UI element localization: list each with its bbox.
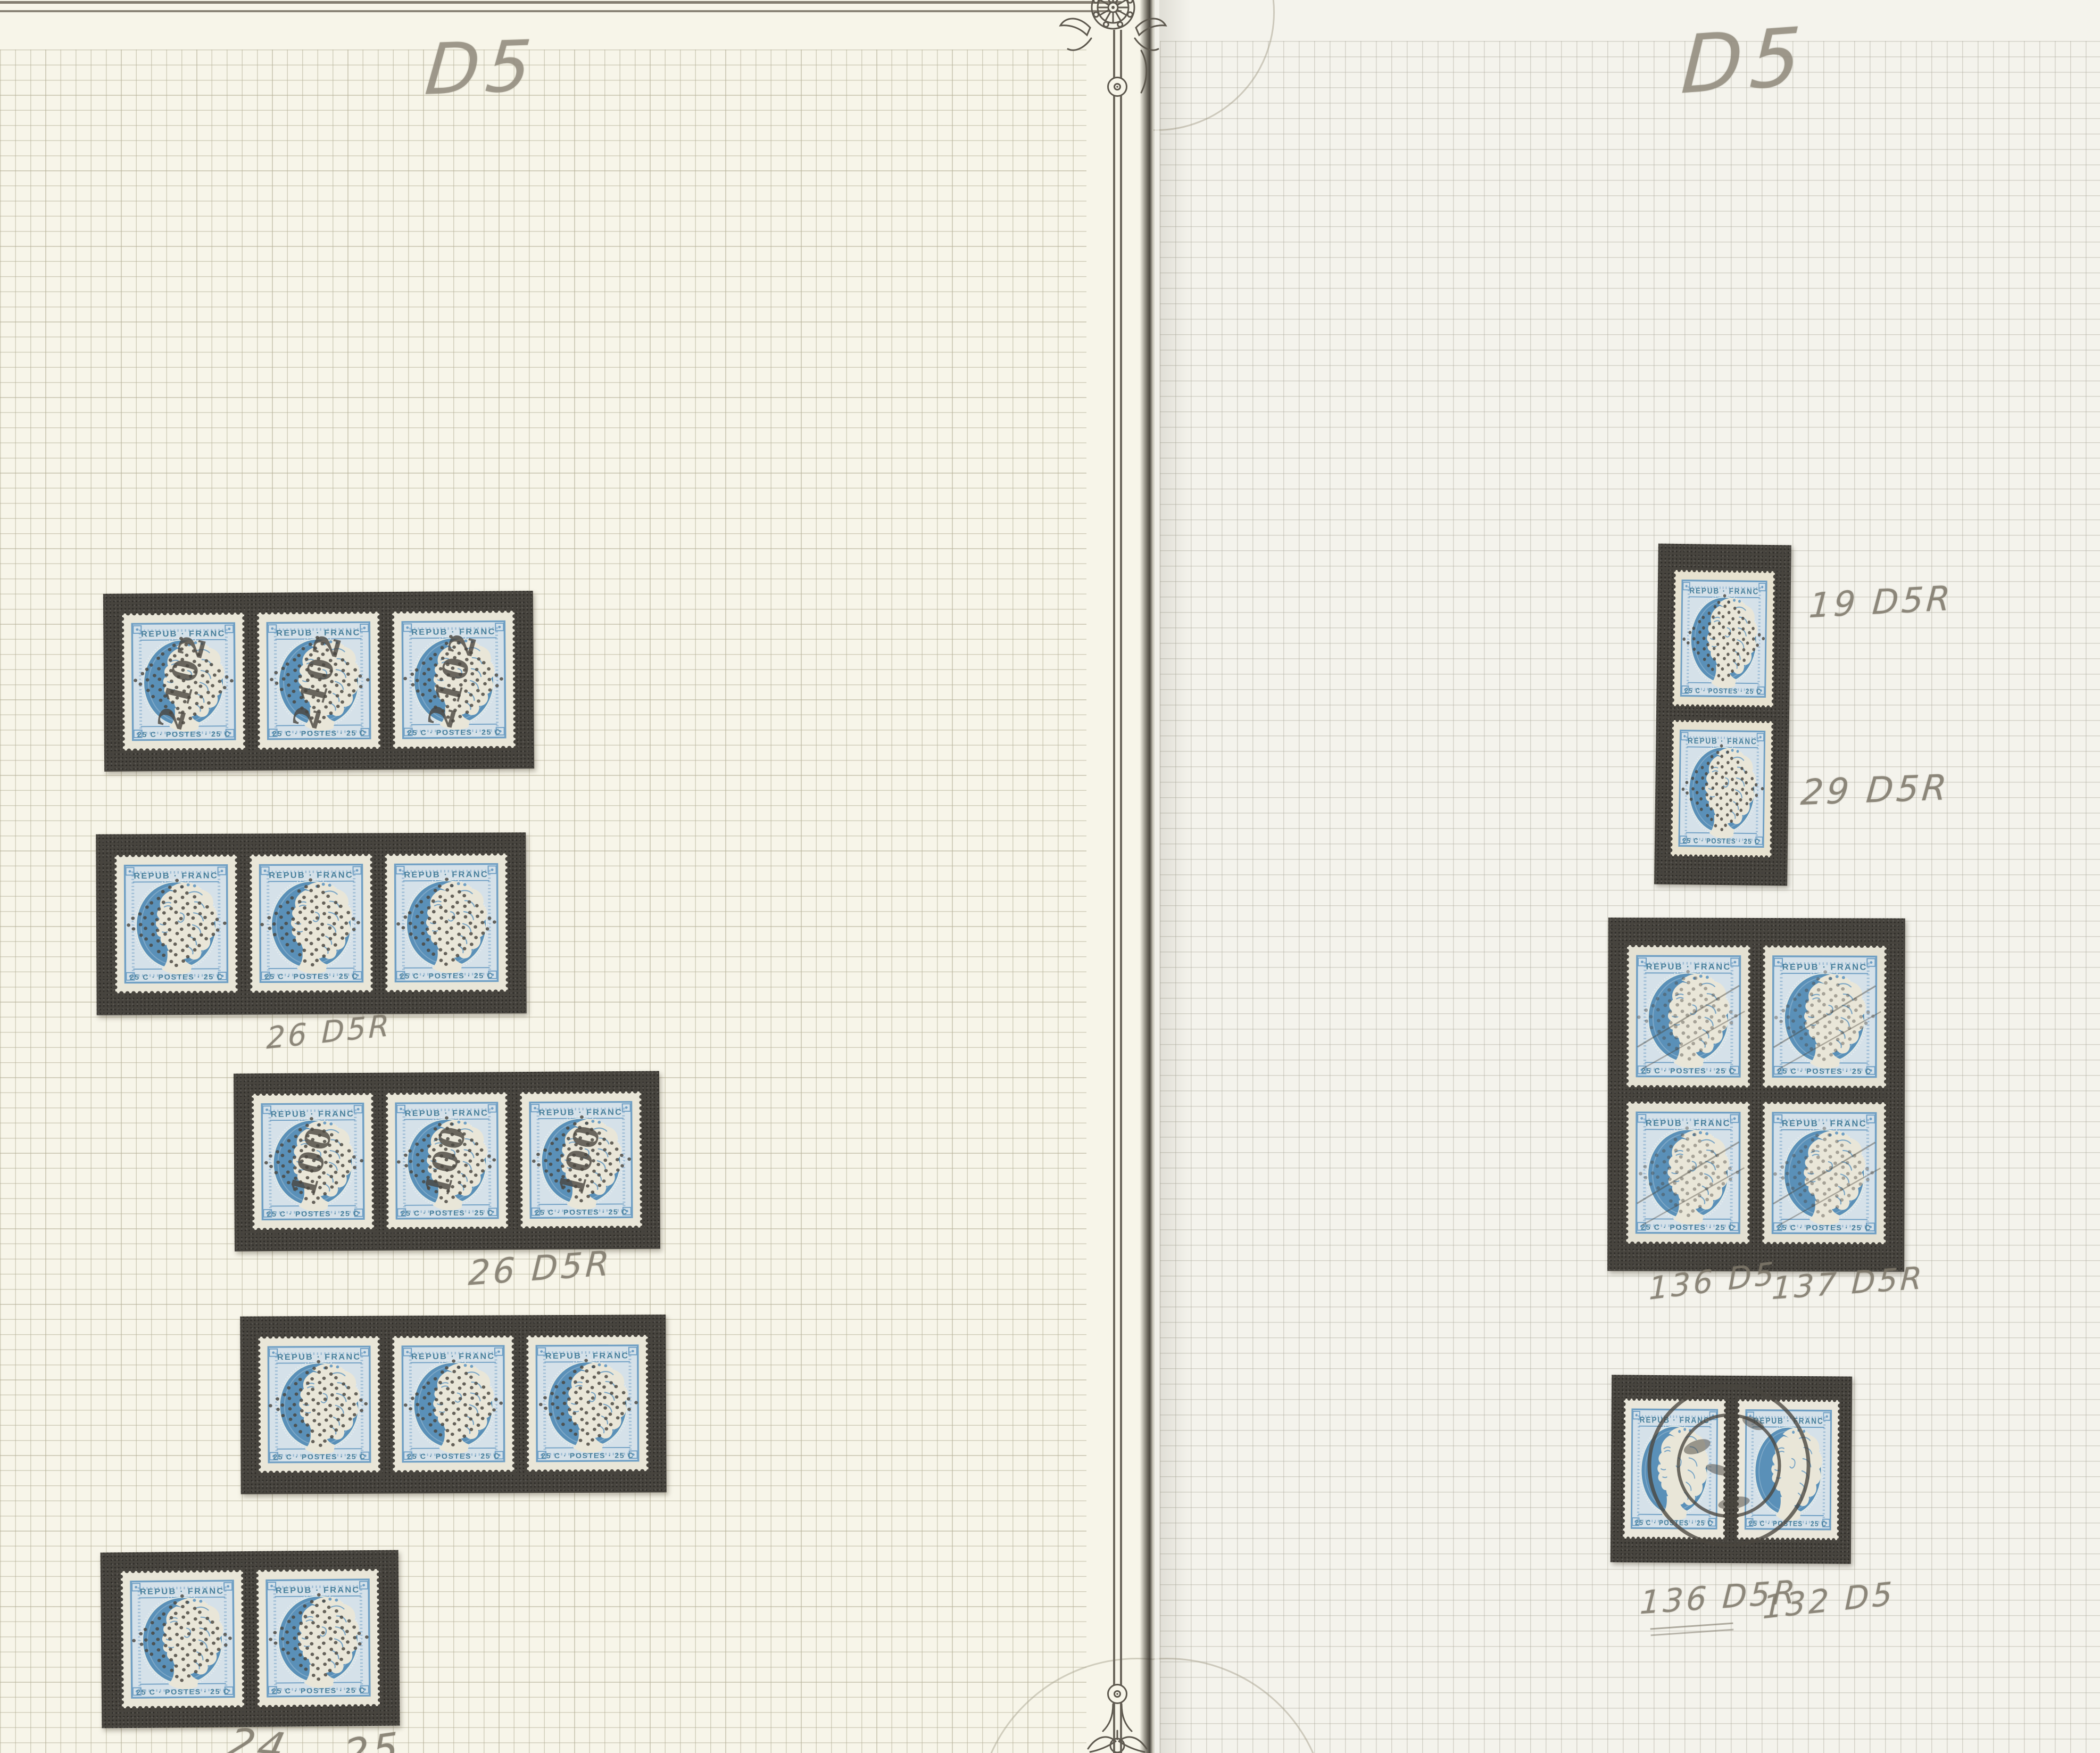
stamp: REPUB · FRANC 25 C · POSTES · 25 C [379,847,513,998]
stamp-cell: REPUB · FRANC 25 C · POSTES · 25 C [387,1329,519,1478]
svg-text:25 C · POSTES · 25 C: 25 C · POSTES · 25 C [265,972,359,980]
stamp: REPUB · FRANC 25 C · POSTES · 25 C [387,1329,519,1478]
svg-text:25 C · POSTES · 25 C: 25 C · POSTES · 25 C [407,1452,500,1460]
stamp: REPUB · FRANC 25 C · POSTES · 25 C2102 [252,606,386,756]
stamp-group-strip-1: REPUB · FRANC 25 C · POSTES · 25 C2102RE… [103,591,534,772]
stamp-cell: REPUB · FRANC 25 C · POSTES · 25 C [244,848,378,998]
stamp: REPUB · FRANC 25 C · POSTES · 25 C [1757,1096,1891,1251]
stamp-cell: REPUB · FRANC 25 C · POSTES · 25 C [251,1563,385,1713]
svg-text:25 C · POSTES · 25 C: 25 C · POSTES · 25 C [130,972,223,981]
svg-text:25 C · POSTES · 25 C: 25 C · POSTES · 25 C [401,1209,493,1218]
svg-text:25 C · POSTES · 25 C: 25 C · POSTES · 25 C [1683,836,1760,846]
stamp-cell: REPUB · FRANC 25 C · POSTES · 25 C2102 [387,605,521,755]
stamp-cell: REPUB · FRANC 25 C · POSTES · 25 C100 [514,1086,648,1235]
stamp: REPUB · FRANC 25 C · POSTES · 25 C [244,848,378,998]
stamp-cell: REPUB · FRANC 25 C · POSTES · 25 C [1666,714,1778,863]
svg-text:25 C · POSTES · 25 C: 25 C · POSTES · 25 C [541,1451,634,1460]
stamp: REPUB · FRANC 25 C · POSTES · 25 C [251,1563,385,1713]
stamp: REPUB · FRANC 25 C · POSTES · 25 C [109,849,243,999]
stamp-cell: REPUB · FRANC 25 C · POSTES · 25 C100 [380,1086,513,1235]
pencil-annotation-d5-right: D5 [1679,16,1810,106]
stamp-cell: REPUB · FRANC 25 C · POSTES · 25 C [1757,939,1892,1094]
svg-text:25 C · POSTES · 25 C: 25 C · POSTES · 25 C [272,1686,366,1695]
stamp-cell: REPUB · FRANC 25 C · POSTES · 25 C [109,849,243,999]
stamp-cell: REPUB · FRANC 25 C · POSTES · 25 C [1757,1096,1891,1251]
stamp: REPUB · FRANC 25 C · POSTES · 25 C [1668,564,1779,713]
stamp-cell: REPUB · FRANC 25 C · POSTES · 25 C [1668,564,1779,713]
svg-text:25 C · POSTES · 25 C: 25 C · POSTES · 25 C [1777,1224,1871,1233]
stamp-cell: REPUB · FRANC 25 C · POSTES · 25 C [253,1330,385,1479]
stamp-cell: REPUB · FRANC 25 C · POSTES · 25 C2102 [252,606,386,756]
stamp-group-block-right: REPUB · FRANC 25 C · POSTES · 25 CREPUB … [1607,917,1905,1271]
stamp-cell: REPUB · FRANC 25 C · POSTES · 25 C [1621,1095,1755,1250]
stamp-group-strip-3: REPUB · FRANC 25 C · POSTES · 25 C100REP… [234,1071,660,1252]
pencil-annotation-ann-19d5r: 19 D5R [1808,582,1954,623]
svg-text:25 C · POSTES · 25 C: 25 C · POSTES · 25 C [400,971,494,980]
stamp: REPUB · FRANC 25 C · POSTES · 25 C [253,1330,385,1479]
stamp: REPUB · FRANC 25 C · POSTES · 25 C100 [380,1086,513,1235]
stamp: REPUB · FRANC 25 C · POSTES · 25 C [115,1564,250,1714]
stamp-group-strip-4: REPUB · FRANC 25 C · POSTES · 25 CREPUB … [240,1314,666,1494]
svg-text:25 C · POSTES · 25 C: 25 C · POSTES · 25 C [1778,1068,1872,1076]
pencil-annotation-ann-24: 24 [225,1723,292,1753]
svg-text:25 C · POSTES · 25 C: 25 C · POSTES · 25 C [1641,1223,1735,1232]
svg-text:25 C · POSTES · 25 C: 25 C · POSTES · 25 C [1684,686,1762,696]
stamp: REPUB · FRANC 25 C · POSTES · 25 C [1757,939,1892,1094]
stamp-cell: REPUB · FRANC 25 C · POSTES · 25 C2102 [117,607,251,757]
stamp: REPUB · FRANC 25 C · POSTES · 25 C [1621,939,1756,1094]
stamp: REPUB · FRANC 25 C · POSTES · 25 C100 [246,1087,379,1236]
stamp-group-pair-right: REPUB · FRANC 25 C · POSTES · 25 CREPUB … [1611,1375,1852,1564]
stamp: REPUB · FRANC 25 C · POSTES · 25 C [1621,1095,1755,1250]
spine-shadow [1140,0,1155,1753]
stamp-cell: REPUB · FRANC 25 C · POSTES · 25 C [379,847,513,998]
svg-text:25 C · POSTES · 25 C: 25 C · POSTES · 25 C [1641,1067,1736,1076]
stamp-group-vpair-right: REPUB · FRANC 25 C · POSTES · 25 CREPUB … [1654,543,1791,886]
pencil-annotation-ann-25: 25 [343,1726,402,1753]
stamp-cell: REPUB · FRANC 25 C · POSTES · 25 C [115,1564,250,1714]
pencil-annotation-ann-26d5r-2: 26 D5R [468,1246,613,1291]
border-rod-line [1113,30,1115,1753]
page-border-line [0,1,1122,4]
stamp: REPUB · FRANC 25 C · POSTES · 25 C2102 [387,605,521,755]
svg-text:25 C · POSTES · 25 C: 25 C · POSTES · 25 C [267,1209,359,1218]
stamp: REPUB · FRANC 25 C · POSTES · 25 C2102 [117,607,251,757]
svg-text:25 C · POSTES · 25 C: 25 C · POSTES · 25 C [136,1687,230,1696]
stamp-cell: REPUB · FRANC 25 C · POSTES · 25 C [521,1329,653,1477]
pencil-annotation-d5-left: D5 [422,31,540,105]
stamp: REPUB · FRANC 25 C · POSTES · 25 C [521,1329,653,1477]
stamp-cell: REPUB · FRANC 25 C · POSTES · 25 C100 [246,1087,379,1236]
stamp-group-pair-left: REPUB · FRANC 25 C · POSTES · 25 CREPUB … [101,1550,400,1729]
page-border-line [0,10,1122,12]
album-scan: REPUB · FRANC 25 C · POSTES · 25 C2102RE… [0,0,2100,1753]
border-rod-line [1120,30,1122,1753]
stamp: REPUB · FRANC 25 C · POSTES · 25 C [1666,714,1778,863]
svg-text:25 C · POSTES · 25 C: 25 C · POSTES · 25 C [273,1452,366,1461]
datestamp-cancel [1611,1375,1852,1564]
svg-text:25 C · POSTES · 25 C: 25 C · POSTES · 25 C [535,1208,627,1217]
page-edge-highlight [1155,0,1159,1753]
stamp: REPUB · FRANC 25 C · POSTES · 25 C100 [514,1086,648,1235]
stamp-cell: REPUB · FRANC 25 C · POSTES · 25 C [1621,939,1756,1094]
printed-corner-arc [976,1658,1153,1753]
pencil-annotation-ann-29d5r: 29 D5R [1799,770,1951,811]
stamp-group-strip-2: REPUB · FRANC 25 C · POSTES · 25 CREPUB … [96,832,526,1015]
